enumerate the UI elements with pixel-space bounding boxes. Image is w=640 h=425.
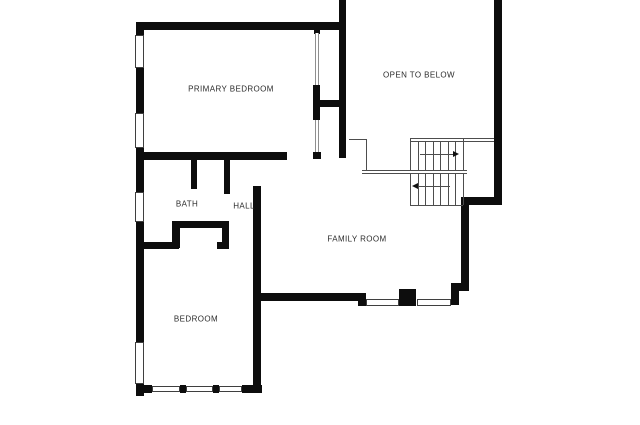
window <box>417 299 451 306</box>
floorplan-canvas: PRIMARY BEDROOMOPEN TO BELOWBATHHALLFAMI… <box>0 0 640 425</box>
room-label-bedroom: BEDROOM <box>174 315 218 324</box>
stair-line <box>418 141 419 170</box>
stair-line <box>425 174 426 205</box>
wall-segment <box>172 221 229 228</box>
wall-segment <box>136 152 287 160</box>
wall-segment <box>358 293 366 306</box>
window <box>219 386 242 392</box>
stair-line <box>425 141 426 170</box>
window <box>135 35 144 68</box>
stair-line <box>410 141 494 142</box>
wall-segment <box>339 0 346 158</box>
stair-line <box>433 174 434 205</box>
wall-segment <box>253 186 261 393</box>
stair-landing <box>362 170 467 174</box>
wall-segment <box>217 242 229 249</box>
wall-segment <box>242 385 262 393</box>
wall-segment <box>191 160 197 189</box>
stair-line <box>418 174 419 205</box>
stair-line <box>410 205 463 206</box>
room-label-family-room: FAMILY ROOM <box>327 235 386 244</box>
window <box>186 386 213 392</box>
wall-segment <box>256 293 365 301</box>
stair-line <box>349 139 367 140</box>
stair-line <box>448 141 449 170</box>
glass-partition <box>315 120 319 152</box>
wall-segment <box>140 242 179 249</box>
stair-line <box>448 174 449 205</box>
stair-line <box>366 139 367 171</box>
stair-line <box>420 154 453 155</box>
wall-segment <box>224 160 230 194</box>
stair-line <box>410 138 494 139</box>
stair-line <box>418 186 450 187</box>
window <box>135 113 144 148</box>
glass-partition <box>315 33 319 85</box>
window <box>135 342 144 384</box>
wall-segment <box>494 0 502 205</box>
stair-direction-arrow-icon <box>412 183 418 189</box>
stair-line <box>433 141 434 170</box>
room-label-hall: HALL <box>233 202 255 211</box>
stair-line <box>455 174 456 205</box>
window <box>366 299 399 306</box>
wall-segment <box>318 100 346 107</box>
wall-segment <box>451 283 469 291</box>
room-label-primary-bedroom: PRIMARY BEDROOM <box>188 85 274 94</box>
stair-line <box>440 174 441 205</box>
room-label-bath: BATH <box>176 200 198 209</box>
fireplace <box>399 289 416 306</box>
wall-segment <box>451 291 459 305</box>
window <box>152 386 180 392</box>
stair-line <box>440 141 441 170</box>
stair-direction-arrow-icon <box>453 151 459 157</box>
wall-segment <box>313 152 321 159</box>
room-label-open-to-below: OPEN TO BELOW <box>383 71 455 80</box>
wall-segment <box>461 197 469 289</box>
window <box>135 192 144 222</box>
wall-segment <box>136 385 152 393</box>
